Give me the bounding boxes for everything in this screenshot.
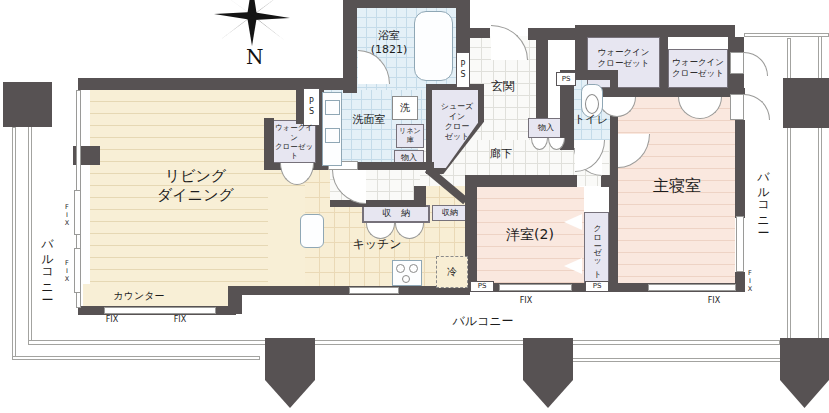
window-fix — [74, 248, 81, 293]
wall — [465, 175, 577, 187]
floor-plan: P S P S PS PS PS N リビング ダイニング カウンター キッチン… — [0, 0, 829, 413]
wic-living-floor — [272, 120, 316, 163]
door-gap — [730, 94, 744, 120]
window-fix — [648, 284, 736, 291]
vanity-sink — [325, 128, 340, 143]
shuno-wide-box — [362, 205, 430, 223]
fridge-box — [436, 256, 468, 288]
fix-label: FIX — [512, 296, 540, 306]
fix-label-vertical: F I X — [61, 258, 73, 284]
stove-burner — [409, 264, 418, 273]
wall — [78, 78, 350, 90]
compass-icon: N — [204, 0, 304, 70]
ps-shaft: P S — [456, 52, 470, 88]
master-bedroom-floor — [618, 97, 735, 284]
toilet-seat — [585, 94, 599, 114]
balcony-rail-left — [28, 92, 32, 342]
counter-floor — [83, 284, 233, 307]
window-fix — [736, 216, 744, 272]
pillar — [783, 78, 829, 128]
pillar — [523, 338, 573, 408]
door-arc-balcony — [744, 52, 768, 76]
balcony-rail-bottom-outer-left — [12, 356, 260, 360]
window-fix — [74, 190, 81, 235]
wall — [609, 186, 618, 283]
wic-master-2-floor — [668, 49, 728, 88]
wall — [735, 272, 745, 292]
wic-master-1-floor — [587, 37, 660, 88]
wall — [585, 88, 735, 97]
fix-label: FIX — [98, 315, 126, 325]
wall — [343, 0, 470, 8]
stove-burner — [402, 275, 410, 283]
fix-label: FIX — [700, 296, 728, 306]
wall — [414, 186, 426, 207]
balcony-rail-left-outer — [12, 127, 16, 359]
wall — [575, 25, 735, 37]
window-fix — [499, 284, 572, 291]
fix-label-vertical: F I X — [744, 268, 756, 294]
balcony-bottom-label: バルコニー — [446, 313, 520, 329]
wall — [536, 33, 548, 118]
balcony-rail-top-right — [744, 33, 829, 37]
door-arc-entry — [491, 25, 528, 60]
wall — [660, 37, 668, 90]
kitchen-sink — [300, 214, 324, 248]
pillar — [265, 338, 315, 408]
pillar — [780, 338, 829, 408]
balcony-right-label: バルコニー — [754, 155, 772, 235]
wall — [343, 0, 357, 93]
wall — [610, 70, 618, 188]
fix-label-vertical: F I X — [61, 202, 73, 228]
door-arc-balcony — [744, 94, 770, 120]
pillar — [3, 82, 52, 127]
balcony-left-label: バルコニー — [38, 222, 56, 302]
compass-north-label: N — [246, 45, 264, 69]
window-fix — [104, 307, 216, 314]
linen-box — [396, 124, 424, 148]
wall — [470, 28, 490, 38]
fix-label: FIX — [166, 315, 194, 325]
wall — [601, 175, 618, 187]
wall — [330, 200, 422, 207]
monoire-hall-box — [528, 118, 564, 138]
wall — [296, 88, 306, 124]
vanity-sink — [325, 100, 340, 115]
washer-box — [392, 96, 418, 120]
closet-strip — [584, 212, 609, 283]
wall — [456, 0, 470, 54]
door-gap — [730, 52, 744, 74]
window — [349, 287, 399, 294]
balcony-rail-bottom — [28, 340, 780, 345]
bathtub — [414, 11, 453, 81]
shuno-box — [432, 205, 468, 221]
bedroom2-floor — [477, 187, 584, 283]
stove-burner — [396, 264, 405, 273]
